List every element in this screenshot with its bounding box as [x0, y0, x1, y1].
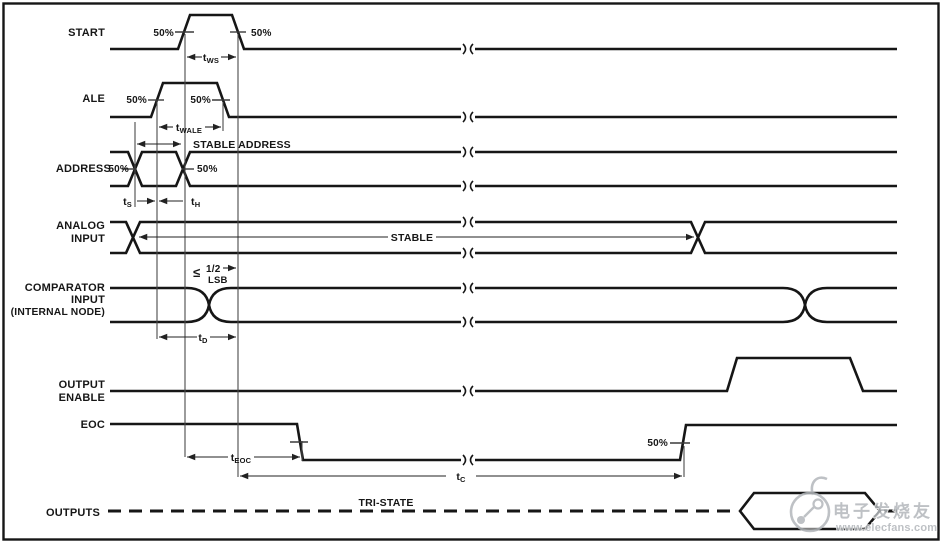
td-label: tD: [198, 332, 208, 345]
outputs-waveform: [108, 493, 897, 529]
comparator-label-line3: (INTERNAL NODE): [11, 307, 105, 318]
output-enable-label-line1: OUTPUT: [59, 379, 105, 391]
comparator-label-line2: INPUT: [71, 294, 105, 306]
annotation-labels: STABLE ADDRESS STABLE TRI-STATE ≤ 1/2 LS…: [193, 139, 433, 509]
analog-input-label-line2: INPUT: [71, 233, 105, 245]
address-label: ADDRESS: [56, 163, 111, 175]
measurement-arrows: [137, 57, 694, 476]
output-enable-waveform: [110, 358, 897, 391]
lsb-num-label: 1/2: [206, 264, 221, 275]
watermark: 电子发烧友 www.elecfans.com: [791, 478, 937, 534]
eoc-50pct-rise: 50%: [647, 438, 668, 449]
analog-input-label-line1: ANALOG: [56, 220, 105, 232]
timing-diagram: START ALE ADDRESS ANALOG INPUT COMPARATO…: [0, 0, 943, 543]
start-label: START: [68, 27, 105, 39]
ale-50pct-rise: 50%: [126, 95, 147, 106]
lsb-text-label: LSB: [208, 275, 228, 286]
th-label: tH: [191, 196, 200, 209]
start-50pct-rise: 50%: [153, 28, 174, 39]
stable-label: STABLE: [391, 232, 433, 244]
start-waveform: [110, 15, 897, 49]
output-enable-label-line2: ENABLE: [59, 392, 105, 404]
outputs-label: OUTPUTS: [46, 507, 100, 519]
time-break-marks: [463, 44, 473, 465]
address-waveform-rail1: [110, 152, 897, 186]
address-50pct-left: 50%: [108, 164, 129, 175]
tws-label: tWS: [203, 52, 219, 65]
signal-labels: START ALE ADDRESS ANALOG INPUT COMPARATO…: [11, 27, 111, 519]
lsb-le-symbol: ≤: [193, 265, 200, 280]
comparator-waveform-rail1: [110, 288, 897, 305]
tri-state-label: TRI-STATE: [358, 497, 413, 509]
watermark-url-text: www.elecfans.com: [835, 522, 937, 534]
ale-label: ALE: [82, 93, 105, 105]
fifty-percent-labels: 50% 50% 50% 50% 50% 50% 50%: [108, 28, 668, 449]
address-waveform-rail2: [110, 152, 897, 186]
twale-label: tWALE: [176, 122, 202, 135]
tc-label: tC: [456, 471, 466, 484]
start-50pct-fall: 50%: [251, 28, 272, 39]
ale-50pct-fall: 50%: [190, 95, 211, 106]
timing-diagram-canvas: START ALE ADDRESS ANALOG INPUT COMPARATO…: [0, 0, 943, 543]
comparator-waveform-rail2: [110, 305, 897, 322]
address-50pct-right: 50%: [197, 164, 218, 175]
ts-label: tS: [123, 196, 132, 209]
comparator-label-line1: COMPARATOR: [25, 282, 105, 294]
eoc-label: EOC: [81, 419, 105, 431]
teoc-label: tEOC: [231, 452, 252, 465]
stable-address-label: STABLE ADDRESS: [193, 139, 291, 151]
eoc-waveform: [110, 424, 897, 460]
watermark-brand-text: 电子发烧友: [833, 501, 933, 521]
watermark-logo-dot-filled: [797, 516, 805, 524]
